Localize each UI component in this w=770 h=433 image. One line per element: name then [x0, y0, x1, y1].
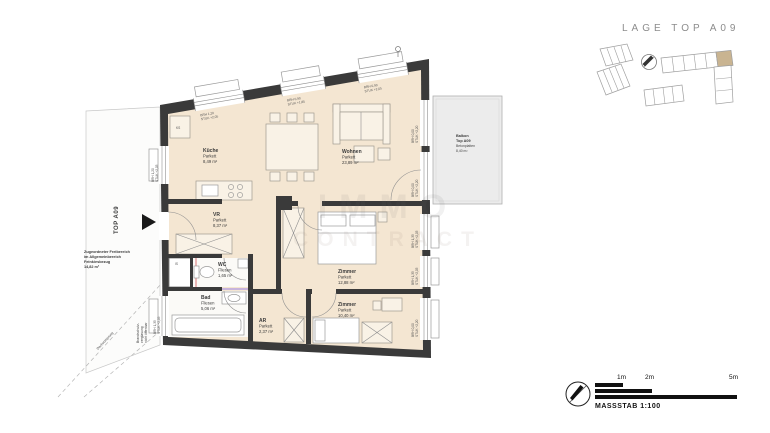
- svg-text:8,49 m²: 8,49 m²: [203, 159, 218, 164]
- sofa-arm: [333, 104, 340, 144]
- site-plan: LAGE TOP A09: [597, 23, 740, 106]
- svg-text:Fliesen: Fliesen: [218, 268, 232, 273]
- side-table: [378, 148, 390, 160]
- svg-text:8,40 m²: 8,40 m²: [456, 149, 468, 153]
- svg-text:8,37 m²: 8,37 m²: [213, 223, 228, 228]
- svg-text:Fliesen: Fliesen: [201, 301, 215, 306]
- svg-text:Balkon: Balkon: [456, 134, 469, 138]
- watermark-line2: CONTRACT: [293, 228, 483, 251]
- chair: [287, 172, 297, 181]
- svg-text:23,89 m²: 23,89 m²: [342, 160, 359, 165]
- chair: [270, 113, 280, 122]
- freibereich-area-value: 14,82 m²: [84, 265, 100, 269]
- pillow: [315, 320, 325, 341]
- floorplan-canvas: Dachvorsprung Zugeordneter Freibereich i…: [0, 0, 770, 433]
- dining-table: [266, 124, 318, 170]
- site-highlighted-unit: [716, 50, 733, 67]
- window-label: STUK +2,05: [415, 267, 419, 285]
- svg-text:Parkett: Parkett: [338, 308, 352, 313]
- scale-segment-2m: [595, 389, 652, 393]
- raffstore-box: [431, 258, 439, 285]
- svg-text:Parkett: Parkett: [213, 218, 227, 223]
- svg-text:2,37 m²: 2,37 m²: [259, 329, 274, 334]
- scale-bar: 1m 2m 5m MASSSTAB 1:100: [566, 374, 738, 410]
- north-compass-icon: [566, 382, 590, 406]
- svg-text:12,88 m²: 12,88 m²: [338, 280, 355, 285]
- toilet-tank: [194, 266, 199, 278]
- entrance-opening: [159, 212, 169, 240]
- site-plan-title: LAGE TOP A09: [622, 23, 740, 34]
- site-building: [714, 65, 733, 104]
- svg-text:Top A09: Top A09: [456, 139, 471, 143]
- scale-segment-5m: [595, 395, 737, 399]
- fridge-label: KS: [176, 126, 180, 130]
- svg-text:Parkett: Parkett: [203, 154, 217, 159]
- scale-label-5m: 5m: [729, 374, 738, 381]
- scale-label-2m: 2m: [645, 374, 654, 381]
- freibereich-area: Dachvorsprung Zugeordneter Freibereich i…: [58, 107, 161, 397]
- svg-text:Parkett: Parkett: [338, 275, 352, 280]
- svg-text:10,40 m²: 10,40 m²: [338, 313, 355, 318]
- window-label: STUK +2,05: [157, 316, 161, 334]
- watermark: IMMO CONTRACT: [293, 188, 483, 251]
- unit-label: TOP A09: [114, 206, 120, 234]
- chair: [287, 113, 297, 122]
- freibereich-line3: Feinkiesbezug: [84, 260, 111, 264]
- freibereich-line2: im Allgemeinbereich: [84, 255, 122, 259]
- svg-text:Parkett: Parkett: [342, 155, 356, 160]
- chair: [270, 172, 280, 181]
- window-label: STUK +2,20: [415, 319, 419, 337]
- desk: [382, 298, 402, 311]
- room-label-kueche: Küche Parkett 8,49 m²: [203, 148, 219, 164]
- sofa-seat: [340, 112, 383, 140]
- vr-furniture: [176, 234, 232, 254]
- hand-basin: [238, 259, 248, 268]
- scale-label-1m: 1m: [617, 374, 626, 381]
- scale-caption: MASSSTAB 1:100: [595, 403, 661, 410]
- toilet: [200, 267, 214, 278]
- shaft-label: IS: [175, 262, 178, 266]
- washbasin: [228, 294, 240, 301]
- window: BRH 1,35 STUK +2,05: [149, 296, 169, 336]
- installation-shaft: [169, 258, 192, 287]
- chair: [304, 113, 314, 122]
- window-label: STUK +2,05: [155, 164, 159, 182]
- sofa-back: [333, 104, 390, 112]
- scale-segment-1m: [595, 383, 623, 387]
- window-label: STUK +2,20: [415, 125, 419, 143]
- svg-text:1,65 m²: 1,65 m²: [218, 273, 233, 278]
- watermark-line1: IMMO: [318, 188, 459, 226]
- raffstore-box: [431, 300, 439, 338]
- chair: [304, 172, 314, 181]
- kitchen-sink: [202, 185, 218, 196]
- freibereich-line1: Zugeordneter Freibereich: [84, 250, 131, 254]
- desk-chair: [373, 301, 381, 310]
- svg-text:5,06 m²: 5,06 m²: [201, 306, 216, 311]
- window: BRH 1,20 STUK +2,05: [149, 146, 169, 184]
- site-building: [661, 52, 718, 73]
- bathtub-inner: [175, 318, 241, 332]
- sofa-arm: [383, 104, 390, 144]
- svg-text:Parkett: Parkett: [259, 324, 273, 329]
- site-building: [600, 44, 633, 66]
- ar-furniture: [284, 318, 304, 342]
- svg-text:nicht öffenbar: nicht öffenbar: [144, 322, 148, 343]
- svg-text:Betonplatten: Betonplatten: [456, 144, 475, 148]
- site-compass-icon: [642, 55, 657, 70]
